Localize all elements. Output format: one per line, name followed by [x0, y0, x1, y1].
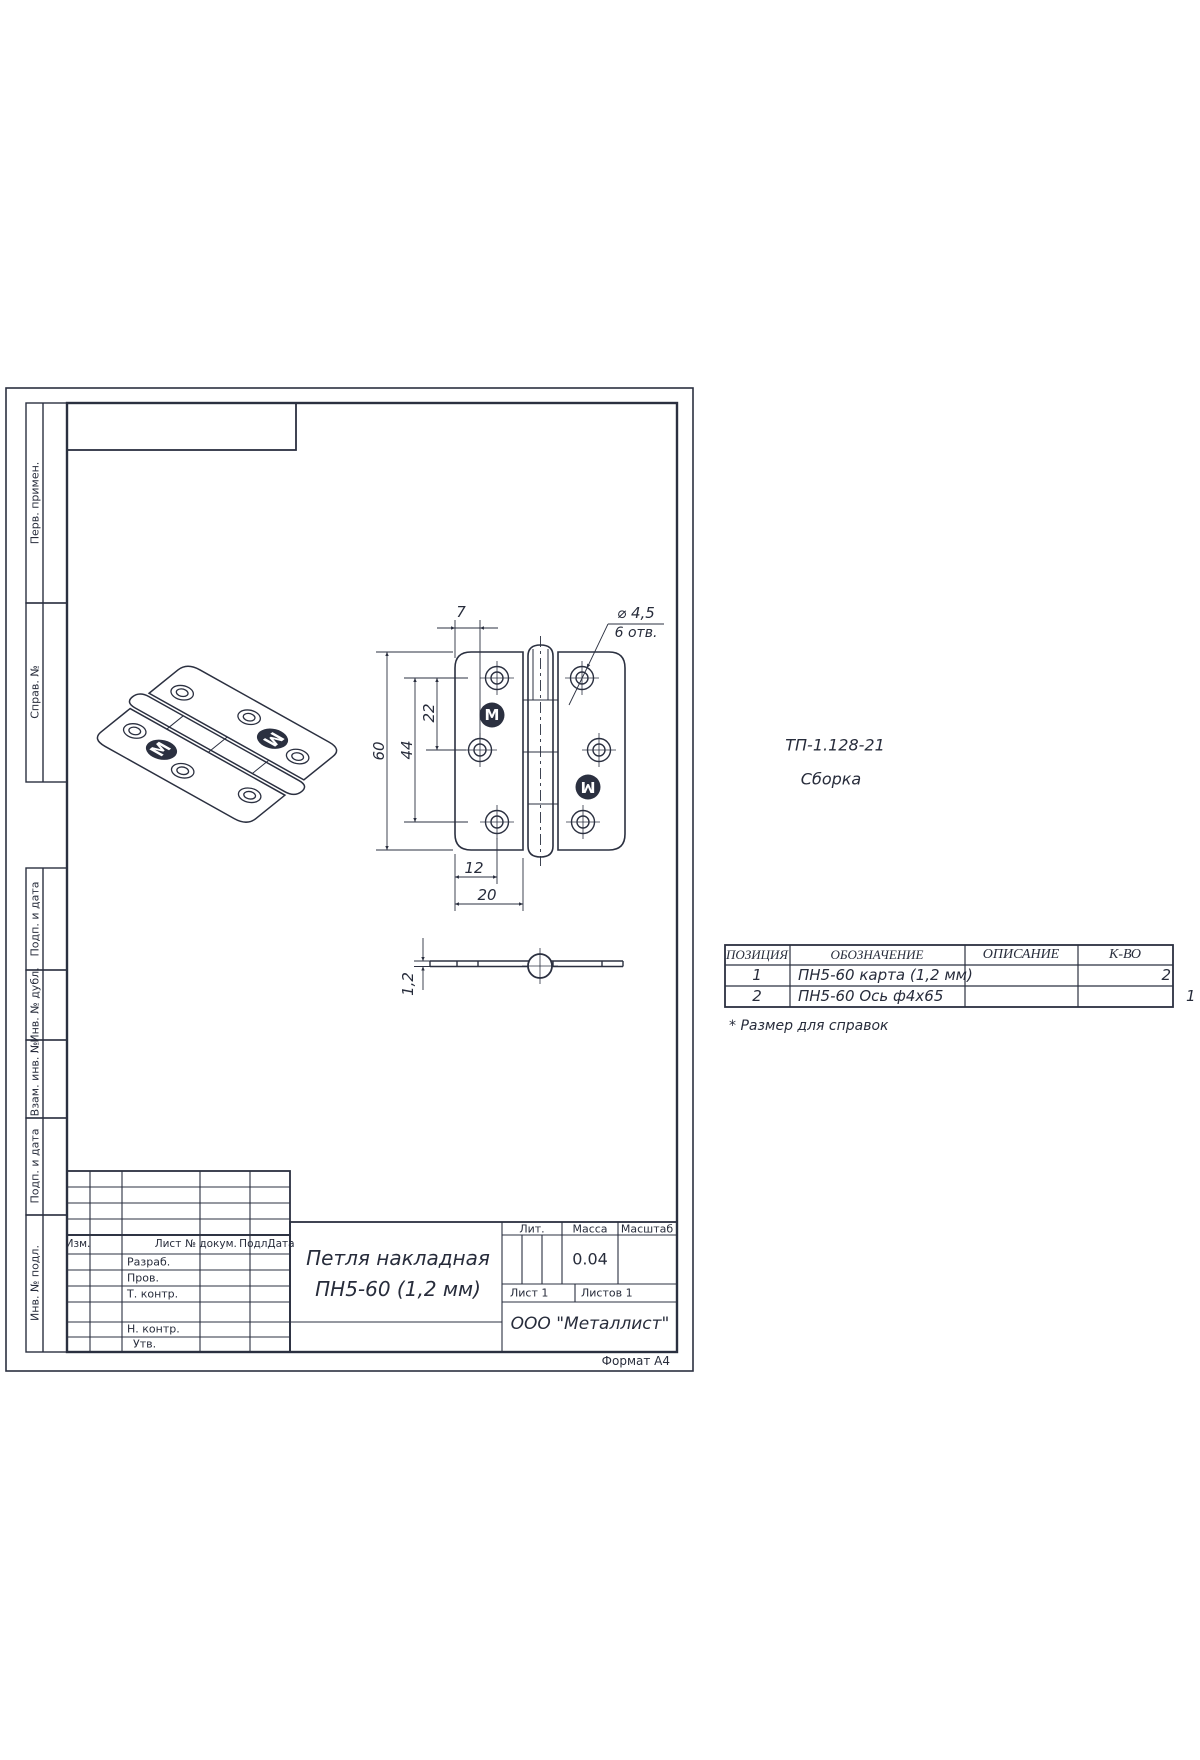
top-left-stub-box	[67, 403, 296, 450]
dim-7-label: 7	[456, 603, 466, 621]
parts-row1-designation: ПН5-60 карта (1,2 мм)	[798, 966, 973, 984]
margin-label-podp-data-1: Подп. и дата	[29, 882, 42, 957]
parts-col-position: ПОЗИЦИЯ	[726, 947, 788, 963]
tb-header-podl: Подл.	[239, 1238, 271, 1250]
margin-label-sprav-no: Справ. №	[29, 665, 42, 719]
tb-mass-value: 0.04	[572, 1250, 608, 1269]
margin-label-vzam-inv: Взам. инв. №	[29, 1042, 42, 1117]
dim-22-label: 22	[420, 703, 438, 722]
dim-12-label: 12	[464, 859, 483, 877]
dim-hole-dia-label: ⌀ 4,5	[617, 604, 655, 622]
tb-sheets-total: Листов 1	[581, 1287, 633, 1300]
parts-row2-designation: ПН5-60 Ось ф4х65	[798, 987, 943, 1005]
brand-logo-letter: M	[581, 778, 596, 796]
parts-row2-pos: 2	[752, 987, 762, 1005]
front-view: M M	[455, 636, 625, 866]
drawing-sheet: M M	[0, 0, 1200, 1760]
parts-row2-qty-outside: 1	[1186, 987, 1196, 1005]
tb-role-tkontr: Т. контр.	[127, 1288, 178, 1301]
side-view	[430, 948, 623, 984]
margin-label-perv-primen: Перв. примен.	[29, 462, 42, 545]
parts-col-qty: К-ВО	[1109, 947, 1141, 963]
tb-header-izm: Изм.	[66, 1238, 91, 1250]
parts-col-designation: ОБОЗНАЧЕНИЕ	[830, 947, 923, 963]
tb-header-dokum: № докум.	[185, 1238, 237, 1250]
format-note: Формат А4	[602, 1354, 670, 1368]
margin-boxes	[26, 403, 67, 1352]
dim-hole-count-label: 6 отв.	[615, 625, 658, 641]
tb-header-list: Лист	[155, 1238, 182, 1250]
reference-footnote: * Размер для справок	[729, 1018, 889, 1034]
tb-role-nkontr: Н. контр.	[127, 1323, 180, 1336]
dim-20-label: 20	[477, 886, 496, 904]
tb-header-data: Дата	[267, 1238, 294, 1250]
tb-company: ООО "Металлист"	[511, 1314, 670, 1334]
tb-mass-header: Масса	[572, 1223, 607, 1236]
tb-role-prov: Пров.	[127, 1272, 159, 1285]
dim-60-label: 60	[370, 741, 388, 760]
isometric-view: M M	[85, 659, 349, 830]
tb-title-line1: Петля накладная	[306, 1246, 490, 1270]
parts-row1-qty: 2	[1161, 966, 1171, 984]
tb-sheet-no: Лист 1	[510, 1287, 548, 1300]
dim-thickness-label: 1,2	[399, 972, 417, 996]
brand-logo-letter: M	[485, 706, 500, 724]
drawing-linework: M M	[0, 0, 1200, 1760]
tb-role-utv: Утв.	[133, 1338, 156, 1351]
margin-label-podp-data-2: Подп. и дата	[29, 1129, 42, 1204]
doc-stage: Сборка	[801, 770, 861, 789]
doc-code: ТП-1.128-21	[785, 736, 885, 755]
parts-col-description: ОПИСАНИЕ	[983, 947, 1059, 963]
parts-row1-pos: 1	[752, 966, 762, 984]
margin-label-inv-dubl: Инв. № дубл.	[29, 967, 42, 1042]
tb-lit-header: Лит.	[519, 1223, 544, 1236]
tb-scale-header: Масштаб	[621, 1223, 673, 1236]
margin-label-inv-podl: Инв. № подл.	[29, 1245, 42, 1321]
tb-title-line2: ПН5-60 (1,2 мм)	[315, 1277, 481, 1301]
tb-role-razrab: Разраб.	[127, 1256, 170, 1269]
reserve-table	[67, 1171, 290, 1235]
dim-44-label: 44	[398, 740, 416, 759]
